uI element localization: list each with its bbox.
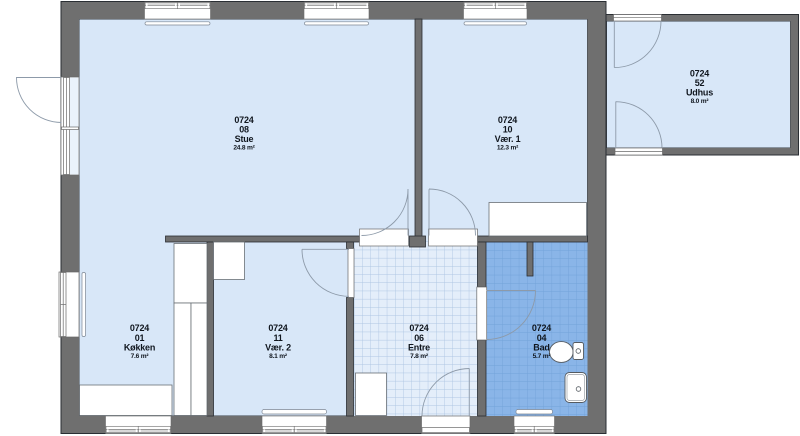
svg-text:10: 10 [503,125,513,135]
svg-text:06: 06 [414,333,424,343]
svg-text:Køkken: Køkken [124,342,155,352]
svg-text:8.0 m²: 8.0 m² [691,98,710,105]
svg-text:01: 01 [135,333,145,343]
svg-text:Vær. 2: Vær. 2 [265,342,291,352]
svg-text:08: 08 [239,125,249,135]
svg-text:7.8 m²: 7.8 m² [410,353,429,360]
svg-text:Udhus: Udhus [686,88,713,98]
svg-text:0724: 0724 [234,115,253,125]
svg-text:04: 04 [537,333,547,343]
svg-text:Entre: Entre [408,342,430,352]
svg-text:7.6 m²: 7.6 m² [131,353,150,360]
svg-text:0724: 0724 [268,323,287,333]
svg-text:Stue: Stue [235,134,254,144]
svg-text:0724: 0724 [532,323,551,333]
svg-text:0724: 0724 [130,323,149,333]
svg-text:12.3 m²: 12.3 m² [497,145,519,152]
svg-text:Vær. 1: Vær. 1 [495,134,521,144]
svg-text:0724: 0724 [498,115,517,125]
svg-text:0724: 0724 [690,69,709,79]
svg-text:5.7 m²: 5.7 m² [533,353,552,360]
svg-text:11: 11 [273,333,282,343]
svg-text:52: 52 [695,78,705,88]
svg-text:0724: 0724 [409,323,428,333]
svg-text:24.8 m²: 24.8 m² [233,145,255,152]
svg-text:Bad: Bad [533,342,549,352]
svg-text:8.1 m²: 8.1 m² [269,353,288,360]
